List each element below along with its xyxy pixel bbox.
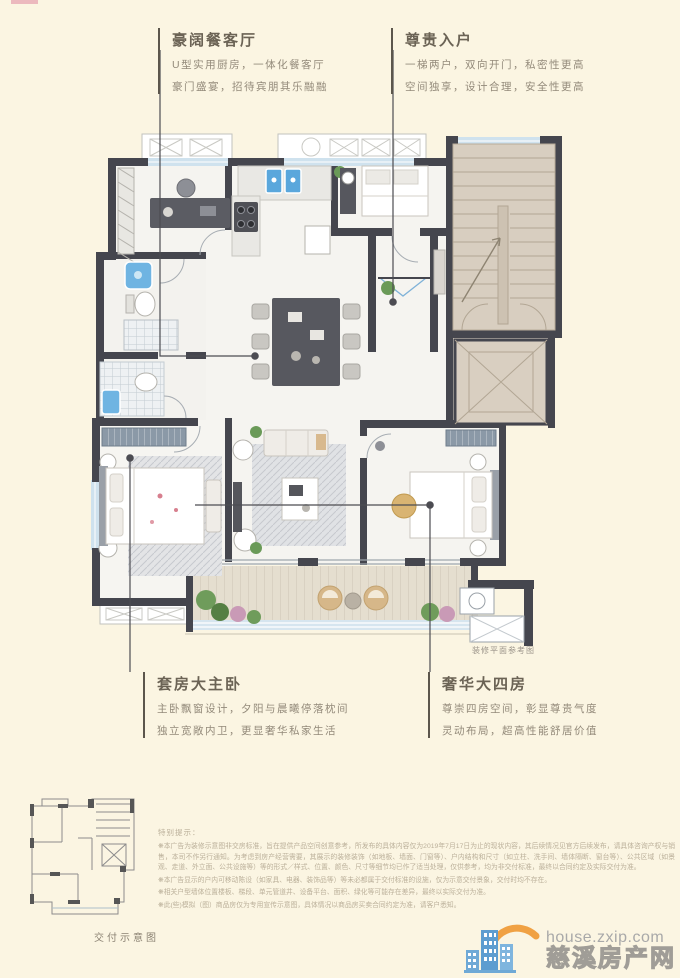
legal-item: ❋本广告显示的户内可移动陈设（如家具、电器、装饰品等）等未必都属于交付标准的设施… [158, 876, 675, 887]
annotation-title: 奢华大四房 [442, 673, 672, 694]
annotation-line: 独立宽敞内卫，更显奢华私家生活 [157, 723, 417, 738]
annotation-entry: 尊贵入户 一梯两户，双向开门，私密性更高 空间独享，设计合理，安全性更高 [391, 28, 655, 94]
bedroom-north [340, 166, 428, 216]
balcony-window-band [185, 620, 485, 634]
annotation-title: 豪阔餐客厅 [172, 29, 412, 50]
poster-canvas: 豪阔餐客厅 U型实用厨房，一体化餐客厅 豪门盛宴，招待宾朋其乐融融 尊贵入户 一… [0, 0, 680, 978]
annotation-line: 豪门盛宴，招待宾朋其乐融融 [172, 79, 412, 94]
annotation-dining: 豪阔餐客厅 U型实用厨房，一体化餐客厅 豪门盛宴，招待宾朋其乐融融 [158, 28, 412, 94]
legal-item: ❋本广告为装修示意图非交房标准，旨在提供产品空间创意参考，所发布的具体内容仅为2… [158, 842, 675, 874]
annotation-line: 尊崇四房空间，彰显尊贵气度 [442, 701, 672, 716]
site-watermark: house.zxip.com 慈溪房产网 [464, 916, 676, 974]
annotation-line: 灵动布局，超高性能舒居价值 [442, 723, 672, 738]
annotation-master: 套房大主卧 主卧飘窗设计，夕阳与晨曦停落枕间 独立宽敞内卫，更显奢华私家生活 [143, 672, 417, 738]
annotation-fourroom: 奢华大四房 尊崇四房空间，彰显尊贵气度 灵动布局，超高性能舒居价值 [428, 672, 672, 738]
legal-item: ❋相关户型墙体位置楼板、梯段、单元管道井、设备平台、面积、绿化等可能存在差异，最… [158, 888, 675, 899]
annotation-title: 套房大主卧 [157, 673, 417, 694]
bay-window-master [100, 604, 190, 624]
plan-reference-caption: 装修平面参考图 [472, 645, 535, 656]
stairwell [453, 144, 555, 330]
annotation-title: 尊贵入户 [405, 29, 655, 50]
annotation-line: 空间独享，设计合理，安全性更高 [405, 79, 655, 94]
annotation-line: 一梯两户，双向开门，私密性更高 [405, 57, 655, 72]
elevator [455, 340, 547, 424]
hall-console [434, 250, 445, 294]
delivery-thumbnail-caption: 交付示意图 [94, 929, 159, 944]
buildings-logo-icon [464, 916, 540, 974]
legal-heading: 特别提示： [158, 827, 675, 838]
annotation-line: 主卧飘窗设计，夕阳与晨曦停落枕间 [157, 701, 417, 716]
watermark-site: 慈溪房产网 [546, 946, 676, 972]
delivery-thumbnail-plan [22, 790, 144, 926]
annotation-line: U型实用厨房，一体化餐客厅 [172, 57, 412, 72]
legal-item: ❋此(些)模拟（图）商品房仅为专用宣传示意图，具体情况以商品房买卖合同约定为准，… [158, 901, 675, 912]
watermark-url: house.zxip.com [546, 929, 676, 946]
legal-disclaimer: 特别提示： ❋本广告为装修示意图非交房标准，旨在提供产品空间创意参考，所发布的具… [158, 827, 675, 913]
